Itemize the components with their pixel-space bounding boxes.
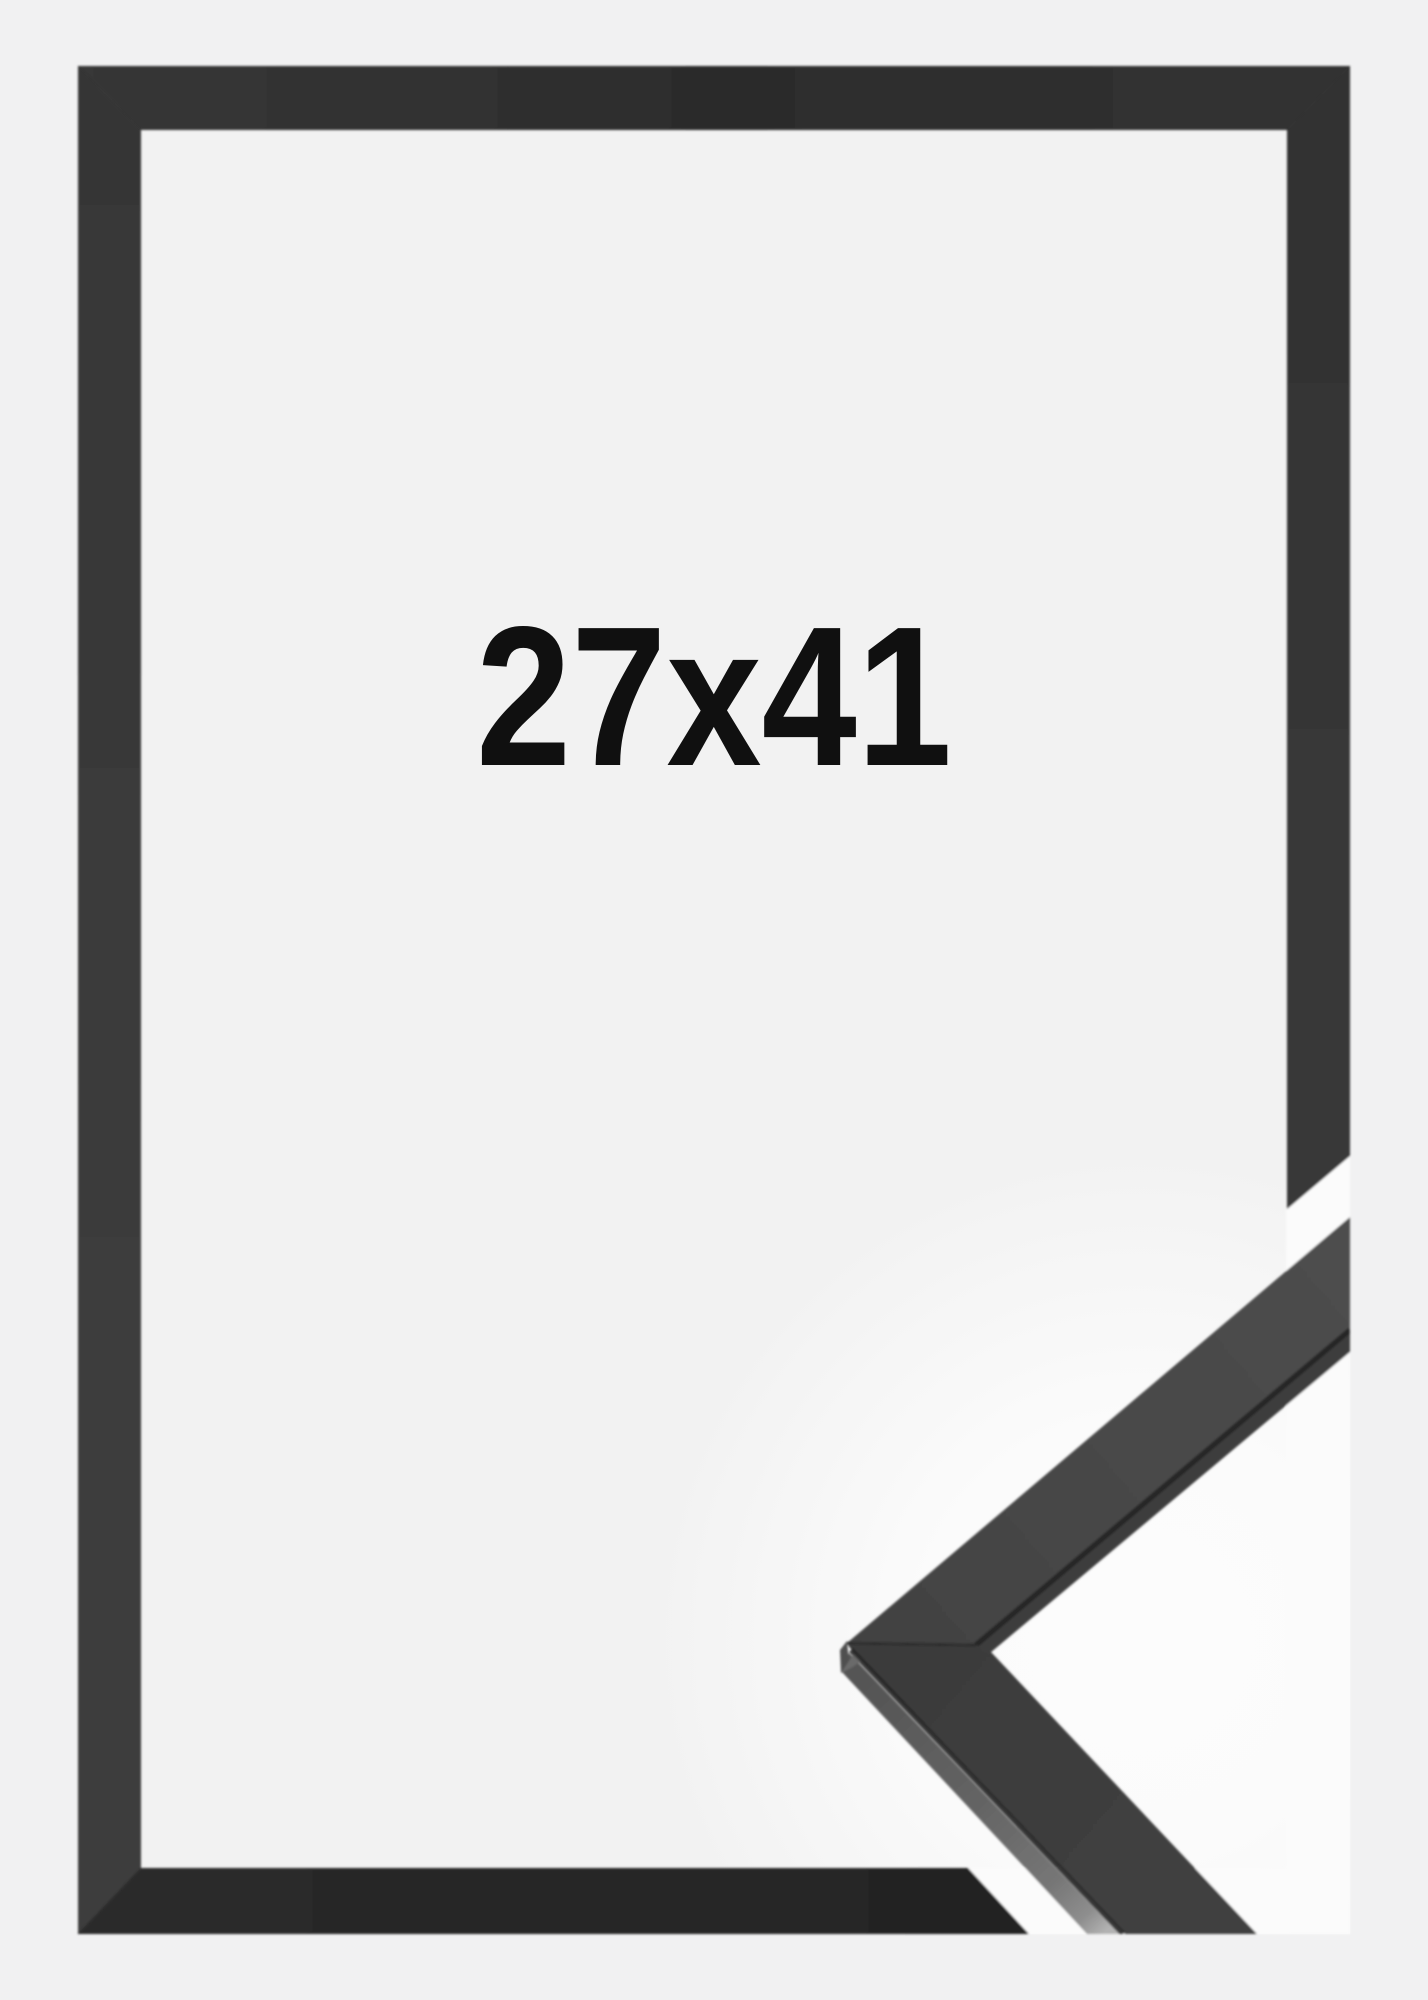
svg-text:27x41: 27x41 (476, 586, 952, 808)
